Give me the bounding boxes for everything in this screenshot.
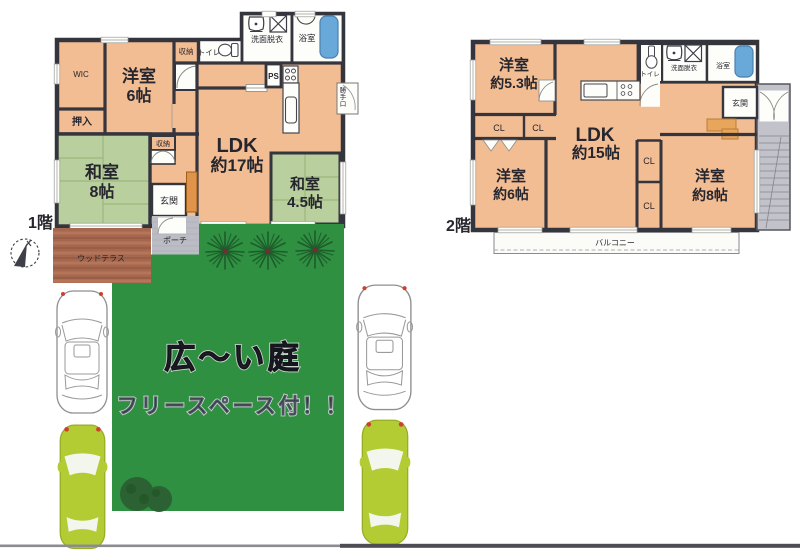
svg-text:洗面脱衣: 洗面脱衣 <box>251 34 283 44</box>
svg-text:玄関: 玄関 <box>732 98 748 108</box>
svg-text:約6帖: 約6帖 <box>493 186 529 202</box>
svg-text:4.5帖: 4.5帖 <box>287 193 323 211</box>
svg-text:6帖: 6帖 <box>127 86 152 105</box>
svg-text:浴室: 浴室 <box>298 33 316 43</box>
svg-text:LDK: LDK <box>216 135 258 157</box>
svg-text:トイレ: トイレ <box>640 71 660 78</box>
svg-text:CL: CL <box>493 123 505 133</box>
svg-text:CL: CL <box>643 201 655 211</box>
svg-text:2階: 2階 <box>446 217 471 235</box>
svg-text:フリースペース付！！: フリースペース付！！ <box>117 395 349 418</box>
svg-text:1階: 1階 <box>28 214 53 232</box>
svg-text:広〜い庭: 広〜い庭 <box>164 339 302 375</box>
svg-text:押入: 押入 <box>72 115 92 128</box>
svg-text:収納: 収納 <box>179 46 194 56</box>
svg-text:約15帖: 約15帖 <box>572 143 621 162</box>
svg-text:ウッドテラス: ウッドテラス <box>77 254 125 263</box>
svg-text:トイレ: トイレ <box>198 48 221 57</box>
svg-text:洋室: 洋室 <box>499 56 529 74</box>
svg-text:ポーチ: ポーチ <box>163 236 187 245</box>
svg-text:和室: 和室 <box>290 175 320 193</box>
svg-text:浴室: 浴室 <box>716 61 730 70</box>
svg-text:LDK: LDK <box>575 125 614 146</box>
svg-text:洗面脱衣: 洗面脱衣 <box>671 63 698 72</box>
svg-text:8帖: 8帖 <box>90 182 115 201</box>
svg-text:バルコニー: バルコニー <box>595 239 635 248</box>
svg-text:PS: PS <box>268 72 279 81</box>
svg-text:和室: 和室 <box>85 162 119 182</box>
svg-text:勝手口: 勝手口 <box>340 85 347 108</box>
svg-text:CL: CL <box>643 156 655 166</box>
svg-text:洋室: 洋室 <box>496 167 526 185</box>
svg-text:約17帖: 約17帖 <box>211 155 264 175</box>
svg-text:WIC: WIC <box>73 70 89 79</box>
svg-text:CL: CL <box>532 123 544 133</box>
svg-text:玄関: 玄関 <box>160 195 178 206</box>
svg-text:洋室: 洋室 <box>695 167 725 185</box>
svg-text:収納: 収納 <box>156 139 170 148</box>
svg-text:約8帖: 約8帖 <box>692 187 728 203</box>
svg-text:約5.3帖: 約5.3帖 <box>490 75 537 91</box>
svg-text:洋室: 洋室 <box>122 66 156 86</box>
